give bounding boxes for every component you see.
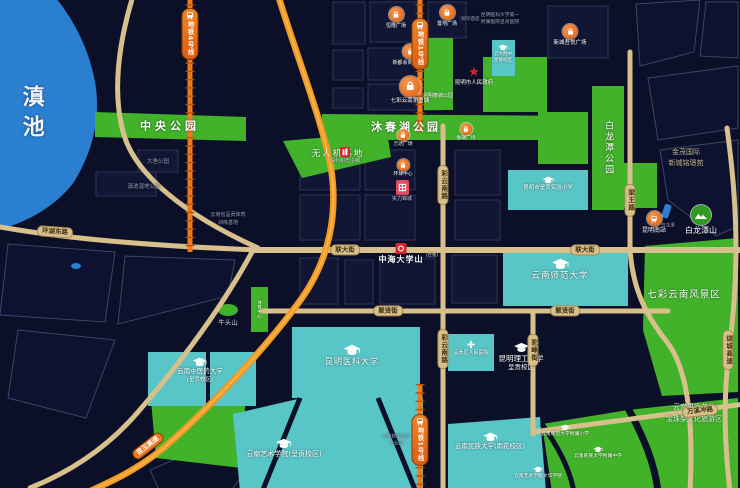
school-label: 云南艺术学院文华学院 xyxy=(514,474,562,480)
niutou-hill-label: 牛头山 xyxy=(218,319,238,326)
graduation-cap-icon xyxy=(593,446,603,453)
featured-project-label: 中海大学山 xyxy=(379,255,424,265)
road-tuofeng: 驼峰街 xyxy=(527,334,538,367)
road-caiyunnan-south: 彩云南路 xyxy=(437,329,448,369)
project-label: 保利和光尘樾 xyxy=(330,158,360,164)
graduation-cap-icon xyxy=(193,357,208,367)
kmu-hospital-label-2: 附属医院呈贡医院 xyxy=(481,20,519,26)
mall-wanda: 万达广场 xyxy=(393,129,412,148)
hospital-label: 呈贡区人民医院 xyxy=(453,350,488,356)
graduation-cap-icon xyxy=(343,344,361,356)
road-lianda-west: 联大街 xyxy=(330,244,360,255)
industry-park-label-1: 云南数字经济 xyxy=(383,434,410,439)
bailongtan-hill-label: 白龙潭山 xyxy=(685,226,717,236)
sports-base-label-2: 训练基地 xyxy=(218,221,238,227)
mall-label: 置地广场 xyxy=(437,21,457,27)
south-railway-station: 昆明南站 xyxy=(642,211,666,234)
university-label: 云南民族大学(雨花校区) xyxy=(455,443,525,451)
mall-label: 万达广场 xyxy=(393,142,412,148)
graduation-cap-icon xyxy=(276,438,293,449)
graduation-cap-icon xyxy=(533,466,543,473)
featured-project-note: (在售) xyxy=(426,253,439,258)
mountain-icon xyxy=(691,205,711,225)
arts-college: 云南艺术学院(呈贡校区) xyxy=(246,438,321,458)
central-park-label: 中央公园 xyxy=(140,121,200,134)
renmin-hospital: 呈贡区人民医院 xyxy=(453,340,488,356)
project-pin-icon xyxy=(396,243,407,254)
metro-line-label: 地铁1号线 xyxy=(416,31,425,66)
jinmao-label-2: 新城铭璟苑 xyxy=(669,159,704,167)
dayu-park-label: 大渔公园 xyxy=(147,159,169,165)
graduation-cap-icon xyxy=(542,176,554,184)
university-label: 云南中医药大学 xyxy=(177,368,223,376)
shopping-bag-icon xyxy=(397,129,409,141)
train-station-icon xyxy=(646,211,661,226)
road-lianda-east: 联大街 xyxy=(570,244,600,255)
school-label: 云南民族大学附属中学 xyxy=(574,454,622,460)
qicai-scenic-label: 七彩云南风景区 xyxy=(647,291,721,302)
metro-line1-station-south: 地铁1号线 xyxy=(412,414,429,466)
metro-line4-station: 地铁4号线 xyxy=(182,8,199,60)
dianchi-lake-label: 滇池 xyxy=(18,85,43,145)
tcm-university: 云南中医药大学 (呈贡校区) xyxy=(177,357,223,383)
metro-line-label: 地铁4号线 xyxy=(186,21,195,56)
building-icon xyxy=(340,147,350,157)
metro-train-icon xyxy=(416,21,425,30)
mall-label: 恒隆广场 xyxy=(386,23,406,29)
normal-primary-school: 云南师范大学附属小学 xyxy=(541,424,589,438)
school-sublabel: 星耀校区 xyxy=(494,58,512,63)
shopping-bag-icon xyxy=(562,24,577,39)
south-station-label: 昆明南站 xyxy=(642,227,666,234)
metro-line1-station-north: 地铁1号线 xyxy=(412,18,429,70)
project-label: 实力锦城 xyxy=(392,196,412,202)
jinmao-label-1: 金茂国际 xyxy=(672,148,700,156)
featured-project: 中海大学山 xyxy=(379,243,424,265)
mall-label: 环球中心 xyxy=(393,172,412,178)
university-sublabel: (呈贡校区) xyxy=(187,377,213,384)
metro-train-icon xyxy=(416,417,425,426)
mall-label: 新城吾悦广场 xyxy=(553,40,586,47)
mall-chunrong: 春融广场 xyxy=(456,123,475,142)
map-canvas[interactable]: 滇池 中央公园 沐春湖公园 无人机基地 白龙潭公园 七彩云南风景区 昆明春城公园… xyxy=(0,0,740,488)
hospital-cross-icon xyxy=(466,340,475,349)
graduation-cap-icon xyxy=(560,424,570,431)
road-caiyunnan-north: 彩云南路 xyxy=(437,165,448,205)
project-marker-1: 保利和光尘樾 xyxy=(330,147,360,164)
city-government-label: 昆明市人民政府 xyxy=(455,80,494,87)
sports-center-label: 体育中心 xyxy=(256,300,261,318)
graduation-cap-icon xyxy=(482,432,497,442)
arts-wenhua-college: 云南艺术学院文华学院 xyxy=(514,466,562,480)
sports-base-label-1: 云南省呈贡体育 xyxy=(210,213,245,219)
mall-huanqiu: 环球中心 xyxy=(393,159,412,178)
metro-train-icon xyxy=(186,11,195,20)
developer-logo-icon xyxy=(395,180,408,195)
mall-wuyue: 新城吾悦广场 xyxy=(553,24,586,47)
graduation-cap-icon xyxy=(498,44,508,51)
yda-middle-school: 云大附中 星耀校区 xyxy=(494,44,512,64)
project-marker-2: 实力锦城 xyxy=(392,180,412,202)
road-raocheng: 绕城高速 xyxy=(722,330,733,370)
bailongtan-hill: 白龙潭山 xyxy=(685,205,717,236)
shiyan-primary-school: 昆明市呈贡实验小学 xyxy=(523,176,573,192)
mall-zhidi: 置地广场 xyxy=(437,5,457,27)
school-label: 云南师范大学附属小学 xyxy=(541,432,589,438)
school-label: 云大附中 xyxy=(494,52,512,57)
minzu-middle-school: 云南民族大学附属中学 xyxy=(574,446,622,460)
mall-label: 七彩云南第壹城 xyxy=(391,98,430,105)
hotel-label: 洲际酒店 xyxy=(460,17,479,23)
star-icon: ★ xyxy=(468,66,480,79)
kunming-medical-university: 昆明医科大学 xyxy=(325,344,379,367)
road-juxian-west: 聚贤街 xyxy=(373,305,403,316)
industry-park-label-2: 产业园 xyxy=(389,441,403,446)
graduation-cap-icon xyxy=(551,258,569,270)
university-label: 昆明医科大学 xyxy=(325,357,379,367)
minzu-university: 云南民族大学(雨花校区) xyxy=(455,432,525,451)
wetland-label: 滇池湿地公园 xyxy=(127,184,160,190)
map-base-art xyxy=(0,0,740,488)
yunnan-normal-university: 云南师范大学 xyxy=(531,258,588,281)
university-label: 云南师范大学 xyxy=(531,271,588,281)
mall-label: 春融广场 xyxy=(456,136,475,142)
shopping-bag-icon xyxy=(460,123,472,135)
bailongtan-park-label: 白龙潭公园 xyxy=(603,121,613,176)
road-juxian-east: 聚贤街 xyxy=(550,305,580,316)
city-government: ★ 昆明市人民政府 xyxy=(455,66,494,87)
metro-line-label: 地铁1号线 xyxy=(416,427,425,462)
university-label: 云南艺术学院(呈贡校区) xyxy=(246,450,321,458)
shopping-bag-icon xyxy=(399,76,420,97)
mall-hengfeng: 恒隆广场 xyxy=(386,7,406,29)
shopping-bag-icon xyxy=(397,159,409,171)
shopping-bag-icon xyxy=(388,7,403,22)
road-liangwang: 梁王路 xyxy=(624,184,635,217)
shopping-bag-icon xyxy=(439,5,454,20)
school-label: 昆明市呈贡实验小学 xyxy=(523,185,573,192)
kmu-hospital-label-1: 昆明医科大学第一 xyxy=(481,13,519,19)
mall-qicai-first-city: 七彩云南第壹城 xyxy=(391,76,430,105)
